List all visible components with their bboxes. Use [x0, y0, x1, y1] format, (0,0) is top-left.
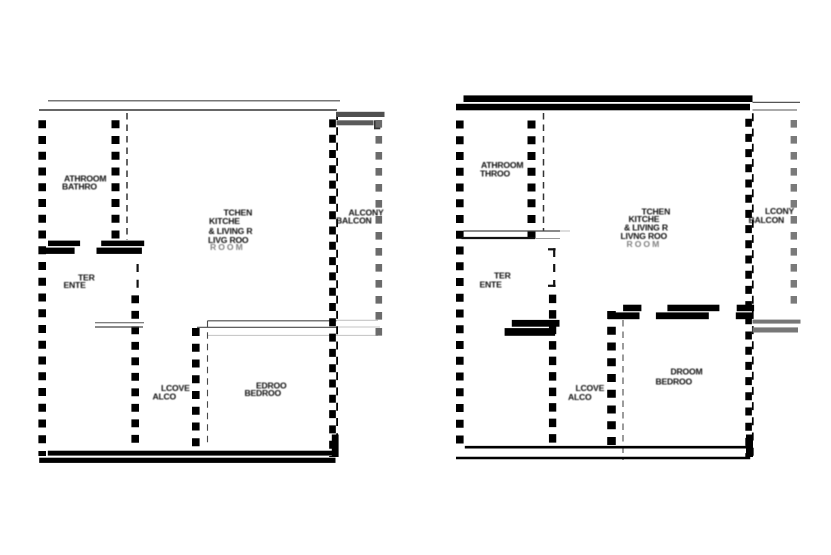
svg-text:BALCON: BALCON	[336, 216, 372, 226]
svg-text:BEDROO: BEDROO	[245, 388, 282, 398]
svg-text:BALCON: BALCON	[749, 215, 785, 225]
svg-text:ENTE: ENTE	[64, 280, 87, 290]
svg-text:ROOM: ROOM	[627, 239, 662, 249]
svg-text:KITCHE: KITCHE	[209, 216, 240, 226]
svg-text:THROO: THROO	[480, 168, 511, 178]
svg-text:ALCO: ALCO	[153, 392, 177, 402]
svg-text:ROOM: ROOM	[210, 242, 245, 252]
svg-text:BATHRO: BATHRO	[62, 181, 97, 191]
svg-text:BEDROO: BEDROO	[656, 376, 693, 386]
svg-text:DROOM: DROOM	[671, 367, 703, 377]
svg-text:ALCO: ALCO	[568, 392, 592, 402]
svg-text:ENTE: ENTE	[480, 280, 503, 290]
